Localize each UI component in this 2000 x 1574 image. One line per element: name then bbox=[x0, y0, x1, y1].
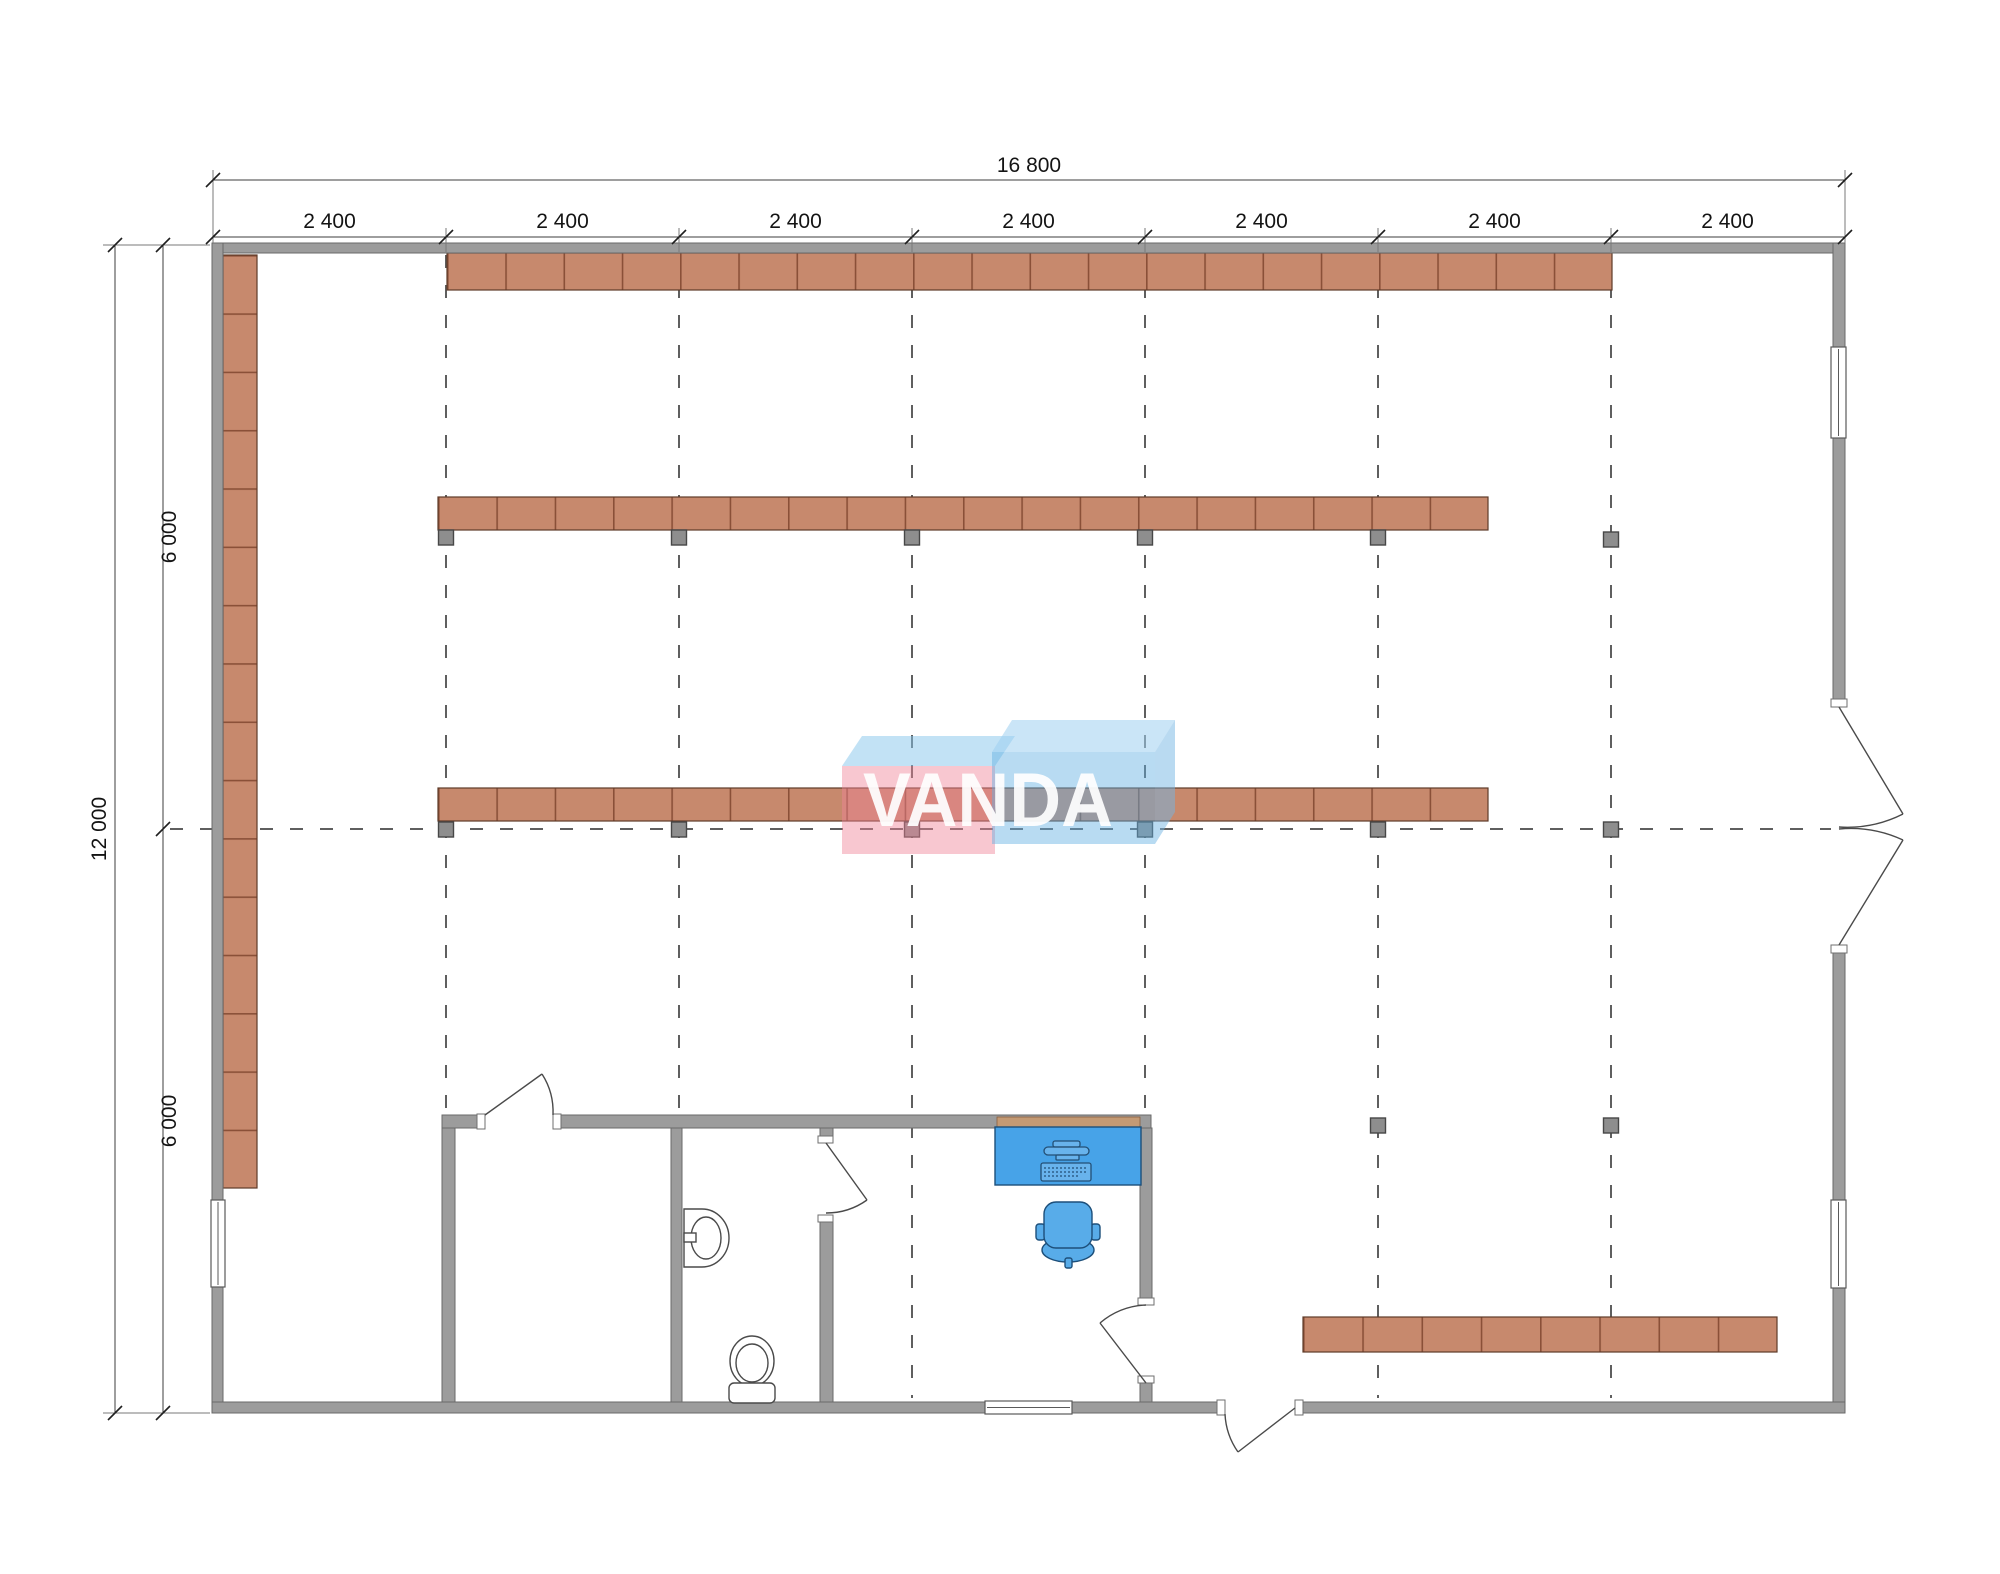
floor-plan-canvas: VANDA 16 800 2 400 bbox=[0, 0, 2000, 1574]
wall-segment-office-right bbox=[1140, 1383, 1152, 1402]
dim-bay-label: 2 400 bbox=[1002, 210, 1055, 233]
wall-segment-wc-left bbox=[671, 1128, 682, 1402]
wall-segment-storeroom-left bbox=[442, 1128, 455, 1402]
desk-back-panel bbox=[997, 1117, 1140, 1127]
column-icon bbox=[1371, 530, 1386, 545]
window-icon-left-lower bbox=[211, 1200, 225, 1287]
column-icon bbox=[672, 530, 687, 545]
column-icon bbox=[1371, 822, 1386, 837]
watermark-box-right-top bbox=[992, 720, 1175, 752]
dim-overall-height-label: 12 000 bbox=[88, 797, 111, 861]
column-icon bbox=[439, 530, 454, 545]
wall-segment-wc-right bbox=[820, 1215, 833, 1402]
wall-segment-right bbox=[1833, 243, 1845, 347]
window-icon-right-upper bbox=[1831, 347, 1846, 438]
column-icon bbox=[905, 530, 920, 545]
column-icon bbox=[672, 822, 687, 837]
vanda-watermark: VANDA bbox=[842, 720, 1175, 854]
toilet-icon bbox=[729, 1336, 775, 1403]
wall-segment-left bbox=[212, 243, 223, 1200]
wall-segment-bottom bbox=[1072, 1402, 1225, 1413]
wall-segment-right bbox=[1833, 945, 1845, 1200]
dim-height-segment-label: 6 000 bbox=[158, 1095, 181, 1148]
window-icon-right-lower bbox=[1831, 1200, 1846, 1288]
column-icon bbox=[1604, 822, 1619, 837]
dim-bay-label: 2 400 bbox=[1468, 210, 1521, 233]
dim-overall-width-label: 16 800 bbox=[997, 154, 1061, 177]
wall-segment-top bbox=[212, 243, 1845, 253]
dim-bay-label: 2 400 bbox=[1235, 210, 1288, 233]
column-icon bbox=[1604, 532, 1619, 547]
wall-segment-left bbox=[212, 1287, 223, 1413]
column-icon bbox=[439, 822, 454, 837]
shelf-rack-icon-left-wall bbox=[223, 255, 257, 1188]
column-icon bbox=[1371, 1118, 1386, 1133]
keyboard-icon bbox=[1041, 1163, 1091, 1181]
wall-segment-right bbox=[1833, 438, 1845, 707]
dim-bay-label: 2 400 bbox=[1701, 210, 1754, 233]
dim-bay-label: 2 400 bbox=[303, 210, 356, 233]
dim-height-segment-label: 6 000 bbox=[158, 511, 181, 564]
column-icon bbox=[1604, 1118, 1619, 1133]
wall-segment-right bbox=[1833, 1288, 1845, 1413]
shelf-rack-icon-row-bottom-right bbox=[1303, 1317, 1777, 1352]
window-icon-bottom-office bbox=[985, 1401, 1072, 1414]
dim-bay-label: 2 400 bbox=[536, 210, 589, 233]
wall-segment-bottom bbox=[212, 1402, 985, 1413]
vanda-watermark-text: VANDA bbox=[863, 758, 1113, 843]
shelf-rack-icon-row-top bbox=[447, 253, 1612, 290]
wall-segment-office-right bbox=[1140, 1128, 1152, 1305]
shelf-rack-icon-row-middle-upper bbox=[438, 497, 1488, 530]
floor-plan-page: VANDA 16 800 2 400 bbox=[0, 0, 2000, 1574]
wall-segment-bottom bbox=[1295, 1402, 1845, 1413]
dim-bay-label: 2 400 bbox=[769, 210, 822, 233]
column-icon bbox=[1138, 530, 1153, 545]
